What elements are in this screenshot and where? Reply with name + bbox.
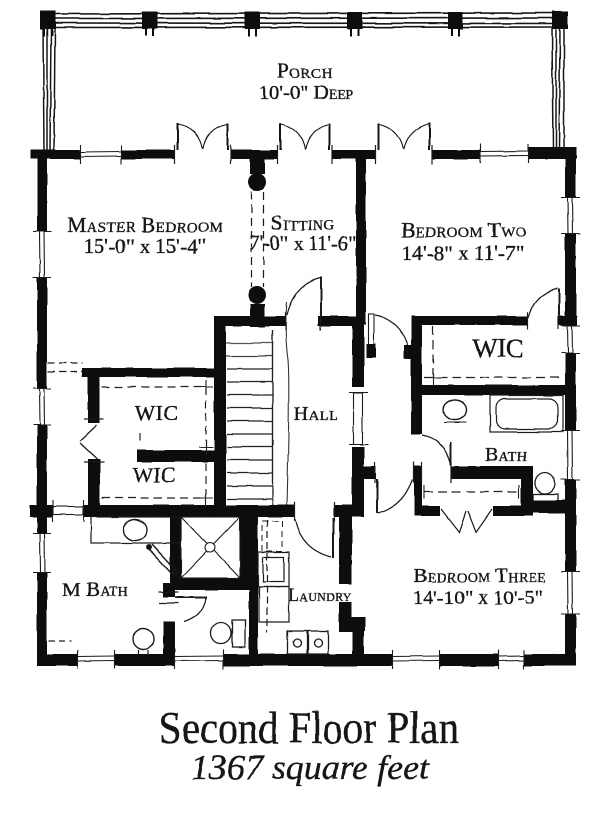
svg-text:Hall: Hall (294, 403, 338, 425)
svg-text:Second Floor Plan: Second Floor Plan (159, 702, 459, 753)
svg-text:WIC: WIC (473, 333, 524, 363)
svg-text:Bedroom Two: Bedroom Two (401, 218, 527, 242)
svg-text:Porch: Porch (277, 59, 333, 83)
svg-text:10'-0" Deep: 10'-0" Deep (259, 82, 354, 104)
svg-text:Laundry: Laundry (288, 585, 351, 605)
svg-text:7'-0" x 11'-6": 7'-0" x 11'-6" (250, 231, 357, 255)
svg-text:M Bath: M Bath (62, 579, 128, 601)
svg-text:Bath: Bath (485, 444, 527, 466)
svg-text:WIC: WIC (135, 401, 178, 425)
svg-text:1367 square feet: 1367 square feet (191, 748, 430, 787)
svg-text:14'-10" x 10'-5": 14'-10" x 10'-5" (413, 587, 543, 609)
svg-text:15'-0" x 15'-4": 15'-0" x 15'-4" (84, 234, 207, 258)
svg-text:Bedroom Three: Bedroom Three (414, 565, 546, 587)
svg-text:14'-8" x 11'-7": 14'-8" x 11'-7" (402, 241, 524, 265)
svg-text:WIC: WIC (132, 463, 175, 487)
